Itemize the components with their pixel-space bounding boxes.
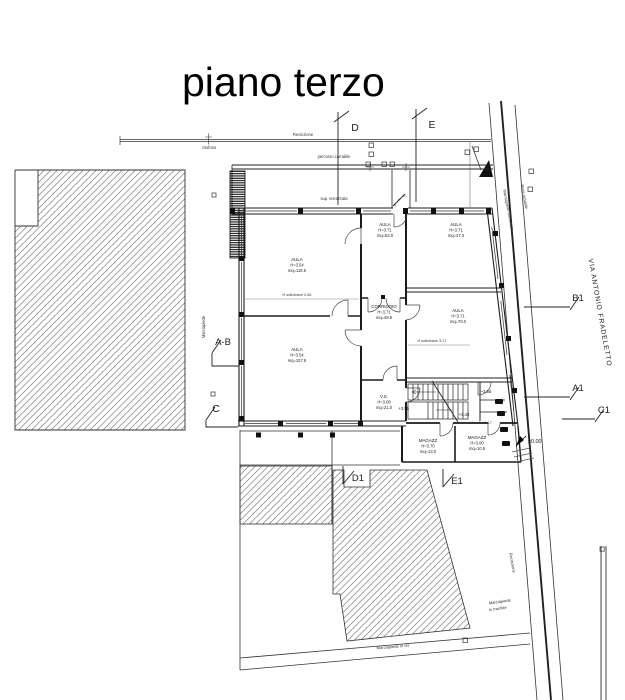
room-area: mq=10.5 [469, 446, 486, 451]
room-height: H=3.71 [449, 228, 463, 233]
room-area: mq=47.3 [448, 233, 465, 238]
room-area: mq=13.0 [420, 449, 437, 454]
room-height: H=3.00 [470, 441, 484, 446]
room-height: H=3.54 [290, 263, 304, 268]
room-area: mq=21.0 [376, 405, 393, 410]
floor-plan-svg: D E A-B C B1 A1 C1 D1 E1 piano terzo Rec… [0, 0, 625, 700]
marker-d1: D1 [352, 473, 364, 484]
label-sup-terrazzata: sup. terrazzata [320, 196, 348, 201]
beam-note: H sottotrave 3.17 [418, 339, 447, 343]
room-name: MAGAZZ [468, 435, 487, 440]
room-height: H=3.54 [290, 353, 304, 358]
room-name: V.S. [380, 394, 388, 399]
page-title: piano terzo [182, 59, 385, 105]
room-name: AULA [452, 308, 464, 313]
room-name: AULA [291, 347, 303, 352]
marker-e: E [428, 119, 435, 131]
beam-note: H sott.= 3.17 [470, 421, 492, 425]
sidewalk-hatch-left [240, 466, 332, 524]
room-name: MAGAZZ [419, 438, 438, 443]
room-height: H=3.71 [377, 310, 391, 315]
room-area: mq=53.0 [377, 233, 394, 238]
room-label-magazzino-1: MAGAZZ H=3.70 mq=13.0 [419, 438, 438, 454]
room-height: H=3.08 [377, 400, 391, 405]
label-marciapiede-left: Marciapiede [201, 315, 206, 338]
room-height: H=3.71 [378, 228, 392, 233]
level-stair-upper: +3.55 [481, 389, 492, 394]
marker-ab: A-B [215, 337, 231, 348]
label-citofono: citofono [202, 145, 217, 150]
room-name: CORRIDOIO [371, 304, 397, 309]
room-height: H=3.70 [421, 444, 435, 449]
beam-note: H sottotrave 2.84 [283, 293, 312, 297]
room-height: H=3.71 [451, 314, 465, 319]
label-recinzione-top: Recinzione [293, 132, 314, 137]
marker-c: C [212, 403, 220, 415]
level-stair-mid: +3.43 [459, 412, 470, 417]
marker-b1: B1 [572, 293, 584, 304]
room-area: mq=118.5 [288, 268, 307, 273]
marker-d: D [351, 122, 359, 134]
room-name: AULA [291, 257, 303, 262]
level-entry: ±0.00 [528, 439, 541, 445]
marker-c1: C1 [598, 405, 610, 416]
room-name: AULA [379, 222, 391, 227]
room-name: AULA [450, 222, 462, 227]
label-percorso-carrabile: percorso carrabile [318, 154, 351, 159]
room-area: mq=107.8 [288, 358, 307, 363]
marker-e1: E1 [451, 476, 463, 487]
room-area: mq=70.0 [450, 319, 467, 324]
level-landing: +3.55 [398, 406, 409, 411]
room-area: mq=48.5 [376, 315, 393, 320]
drawing-sheet: D E A-B C B1 A1 C1 D1 E1 piano terzo Rec… [0, 0, 625, 700]
left-building-block [15, 170, 185, 430]
marker-a1: A1 [572, 383, 584, 394]
